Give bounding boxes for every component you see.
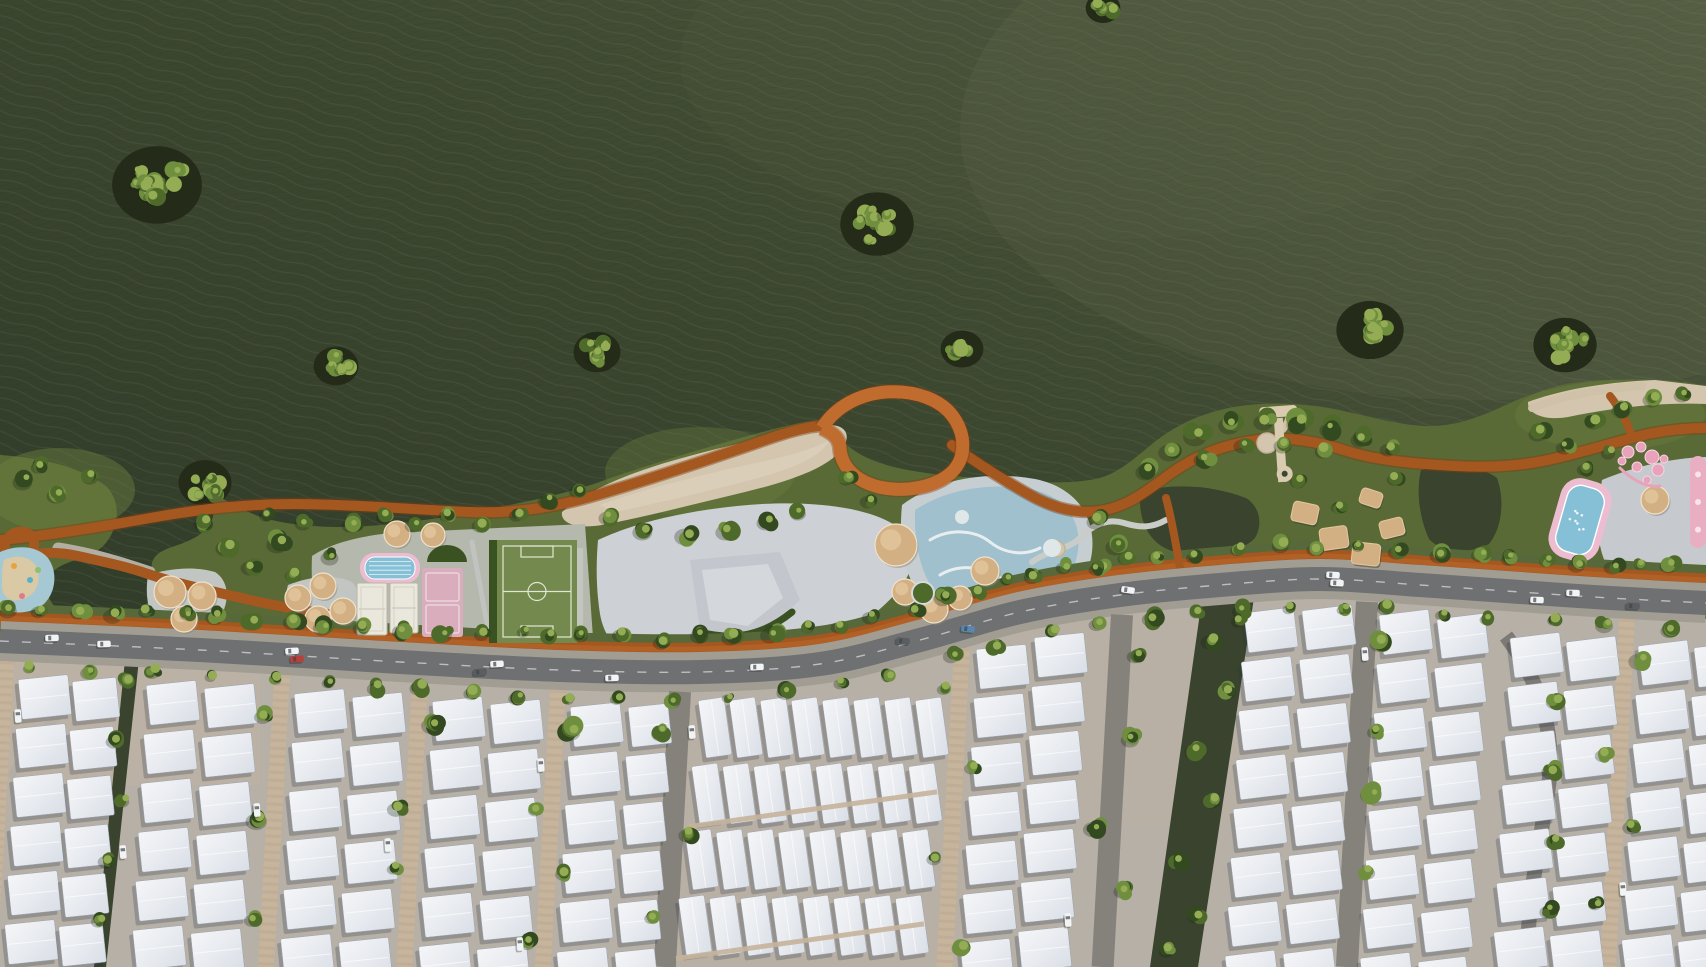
lap-pool: [360, 553, 420, 583]
island: [112, 146, 202, 223]
scene-svg: [0, 0, 1706, 967]
play-structure: [1690, 456, 1706, 548]
island: [941, 331, 984, 368]
island: [1336, 301, 1403, 359]
island: [840, 192, 913, 255]
green-mound: [912, 582, 934, 604]
island: [574, 332, 621, 372]
island: [178, 460, 231, 506]
aerial-masterplan-render: [0, 0, 1706, 967]
lagoon: [1419, 466, 1502, 551]
island: [1533, 318, 1596, 373]
soccer-field: [489, 540, 583, 643]
island: [314, 347, 359, 386]
